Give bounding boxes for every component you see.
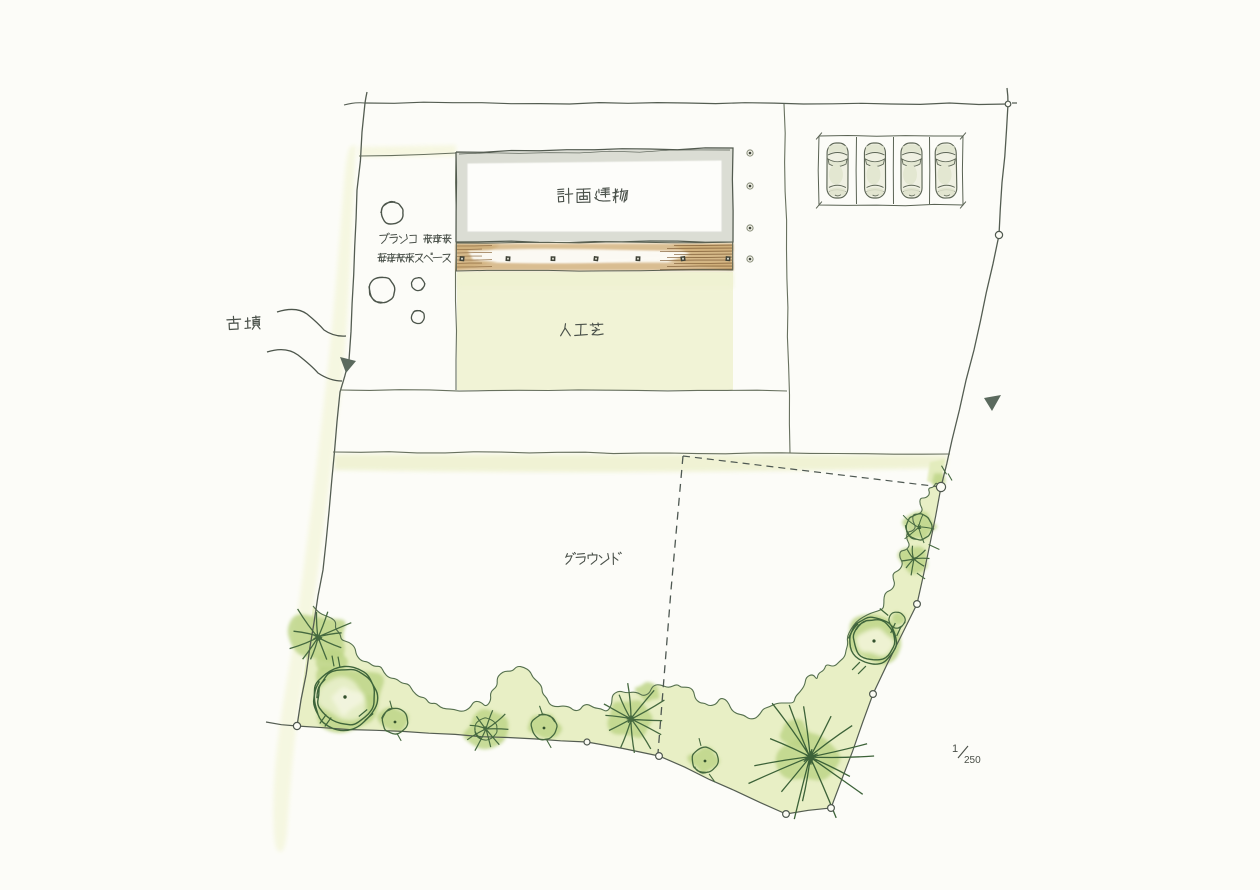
svg-text:1: 1 [952,743,958,755]
svg-text:250: 250 [964,755,981,766]
